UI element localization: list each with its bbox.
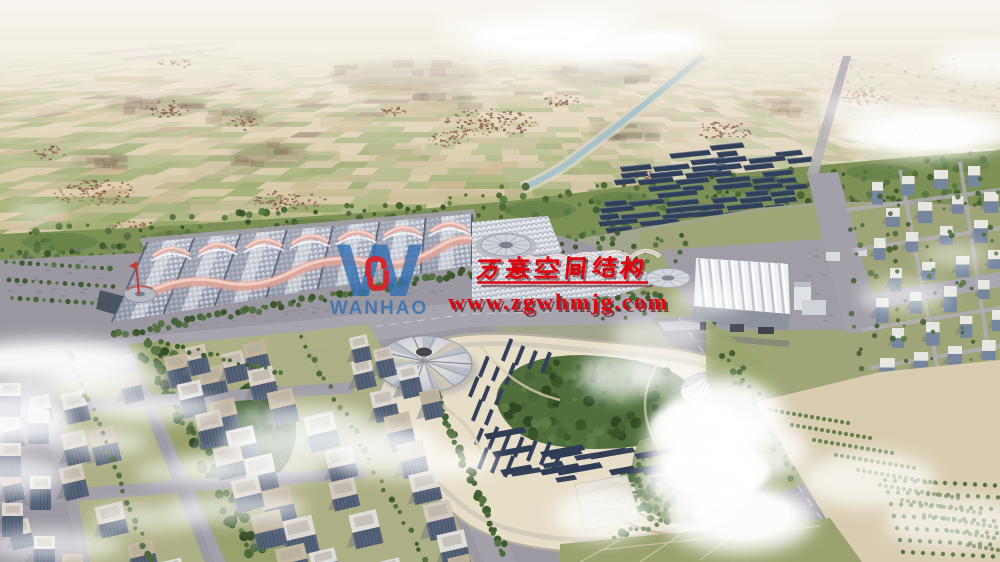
svg-text:www.zgwhmjg.com: www.zgwhmjg.com	[448, 290, 667, 316]
svg-text:WANHAO: WANHAO	[330, 298, 429, 319]
